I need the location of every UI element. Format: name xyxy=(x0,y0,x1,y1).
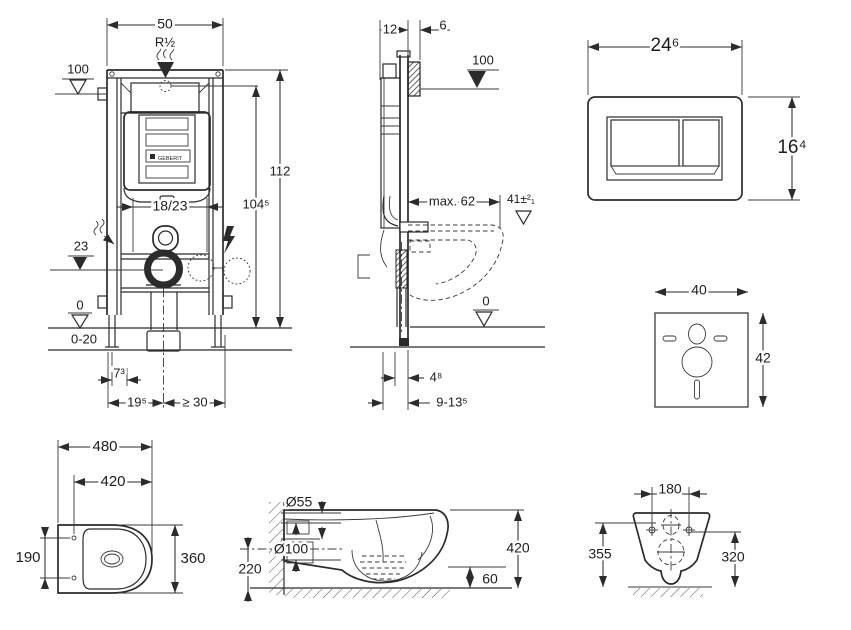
outlet-diameter-label: Ø100 xyxy=(274,541,308,557)
outlet-level-label: 23 xyxy=(74,238,88,253)
flush-plate-opening xyxy=(607,117,722,180)
bowl-outline-back xyxy=(633,513,709,584)
concealed-cistern: GEBERIT xyxy=(124,112,210,207)
drain-pipe xyxy=(147,288,180,410)
pad-slot-right xyxy=(714,336,727,341)
flush-button-bevel xyxy=(611,166,719,174)
plate-height-label: 16⁴ xyxy=(777,137,806,158)
dim-axis-right: ≥ 30 xyxy=(164,335,226,409)
ref-height-label: 100 xyxy=(67,61,89,76)
dim-plate-width: 24⁶ xyxy=(588,35,742,95)
dim-hole-spacing-top: 190 xyxy=(15,527,70,589)
installation-frame-side-view: 12 6 100 max. 62 41±²₁ 0 xyxy=(350,17,545,410)
hole-spacing-top-label: 190 xyxy=(15,549,40,566)
outlet-height-label: 220 xyxy=(238,561,262,577)
toilet-top-view: 480 420 190 360 xyxy=(15,438,205,593)
floor-hatch-back xyxy=(633,588,703,597)
heat-symbol-side-icon xyxy=(94,219,114,244)
ref-height-side-label: 100 xyxy=(472,52,494,67)
dim-bottom-clearance: 60 xyxy=(448,567,506,588)
dim-pad-width: 40 xyxy=(655,282,748,298)
bowl-width-label: 360 xyxy=(180,550,205,567)
hole-spacing-back-label: 180 xyxy=(658,481,682,497)
total-height-label: 112 xyxy=(270,163,291,178)
lightning-bolt-icon xyxy=(223,226,235,254)
foot-offset-label: 7³ xyxy=(113,365,125,380)
sound-insulation-pad-view: 40 42 xyxy=(655,282,771,407)
flush-pipe-side xyxy=(383,196,428,232)
floor-hatch xyxy=(285,589,450,598)
dim-pad-height: 42 xyxy=(755,313,771,407)
dim-front-offset: 6 xyxy=(420,17,450,60)
pad-slot-left xyxy=(663,336,676,341)
pad-height-label: 42 xyxy=(755,350,771,366)
axis-right-label: ≥ 30 xyxy=(182,394,207,409)
dim-foot-offset: 7³ xyxy=(98,352,141,386)
brand-logo: GEBERIT xyxy=(158,156,183,162)
seat-height-mark: 41±²₁ xyxy=(507,192,535,224)
inlet-thread-label: R½ xyxy=(155,34,175,49)
dim-frame-width-label: 50 xyxy=(157,16,173,32)
front-offset-label: 6 xyxy=(439,17,446,32)
dim-outlet-height: 220 xyxy=(238,537,262,602)
depth-options-label: 18/23 xyxy=(152,198,187,214)
flush-plate-view: 24⁶ 16⁴ xyxy=(588,35,807,200)
pad-inlet-cutout xyxy=(689,324,706,344)
cistern-side-profile xyxy=(381,64,400,228)
flush-bend-fitting xyxy=(153,226,178,251)
wall-bracket-block xyxy=(408,62,420,96)
pad-body xyxy=(655,313,748,407)
bottom-offset-label: 4⁸ xyxy=(430,369,443,384)
plate-width-label: 24⁶ xyxy=(651,35,680,56)
dim-bowl-width: 360 xyxy=(118,525,206,593)
seat-height-label: 41±²₁ xyxy=(507,192,535,206)
flush-button-large xyxy=(611,120,679,166)
outlet-bend xyxy=(146,253,181,285)
height-right-label: 320 xyxy=(721,549,745,565)
pad-slot-bottom xyxy=(695,380,700,399)
level-mark-0-front: 0 xyxy=(68,297,92,328)
axis-left-label: 19⁵ xyxy=(127,394,147,409)
bowl-outline-top xyxy=(58,525,152,593)
installation-drawing: GEBERIT xyxy=(0,0,851,630)
bottom-clearance-label: 60 xyxy=(482,571,498,587)
dim-flush-center-height: 104⁵ xyxy=(242,86,269,328)
seat-opening xyxy=(83,529,146,589)
bowl-height-label: 420 xyxy=(506,540,530,556)
floor-level-label: 0 xyxy=(76,297,83,312)
dim-bowl-length: 480 xyxy=(58,438,152,552)
level-mark-0-side: 0 xyxy=(473,293,499,326)
technical-drawing-page: GEBERIT xyxy=(0,0,851,630)
toilet-bowl-outline-dashed xyxy=(408,225,503,300)
pad-width-label: 40 xyxy=(691,282,707,298)
toilet-back-view: 180 355 320 xyxy=(588,481,745,597)
mount-hole-bottom xyxy=(72,576,76,580)
height-left-label: 355 xyxy=(588,546,612,562)
inlet-diameter-label: Ø55 xyxy=(286,494,313,510)
dim-height-right: 320 xyxy=(692,532,745,587)
flush-pipe-compartment xyxy=(121,81,258,114)
frame-depth-label: 12 xyxy=(383,21,397,36)
flush-pipe-center-mark xyxy=(160,81,171,92)
pad-outlet-cutout xyxy=(682,347,712,377)
floor-buildup-label: 0-20 xyxy=(71,331,97,346)
installation-frame-front-view: GEBERIT xyxy=(48,16,292,410)
floor-level-side-label: 0 xyxy=(482,293,489,308)
flush-button-small xyxy=(683,120,719,166)
level-mark-100-front: 100 xyxy=(55,61,107,94)
dim-height-left: 355 xyxy=(588,523,656,587)
seat-length-label: 420 xyxy=(100,473,125,490)
flush-center-height-label: 104⁵ xyxy=(242,196,269,211)
dim-axis-left: 19⁵ xyxy=(108,352,164,409)
bowl-depth-max-label: max. 62 xyxy=(429,193,475,208)
dim-bottom-offset: 4⁸ xyxy=(381,350,442,410)
toilet-side-view: Ø55 Ø100 220 420 60 xyxy=(238,494,530,602)
dim-inlet-diameter: Ø55 xyxy=(281,494,341,535)
flush-opening-inner xyxy=(105,554,120,564)
bottom-range-label: 9-13⁵ xyxy=(436,394,467,409)
bowl-length-label: 480 xyxy=(92,438,117,455)
level-mark-100-side: 100 xyxy=(421,52,499,89)
logo-square xyxy=(150,154,155,159)
dim-frame-depth: 12 xyxy=(380,20,408,80)
mount-hole-top xyxy=(72,536,76,540)
dim-plate-height: 16⁴ xyxy=(748,97,807,200)
dim-hole-spacing-back: 180 xyxy=(634,481,707,526)
